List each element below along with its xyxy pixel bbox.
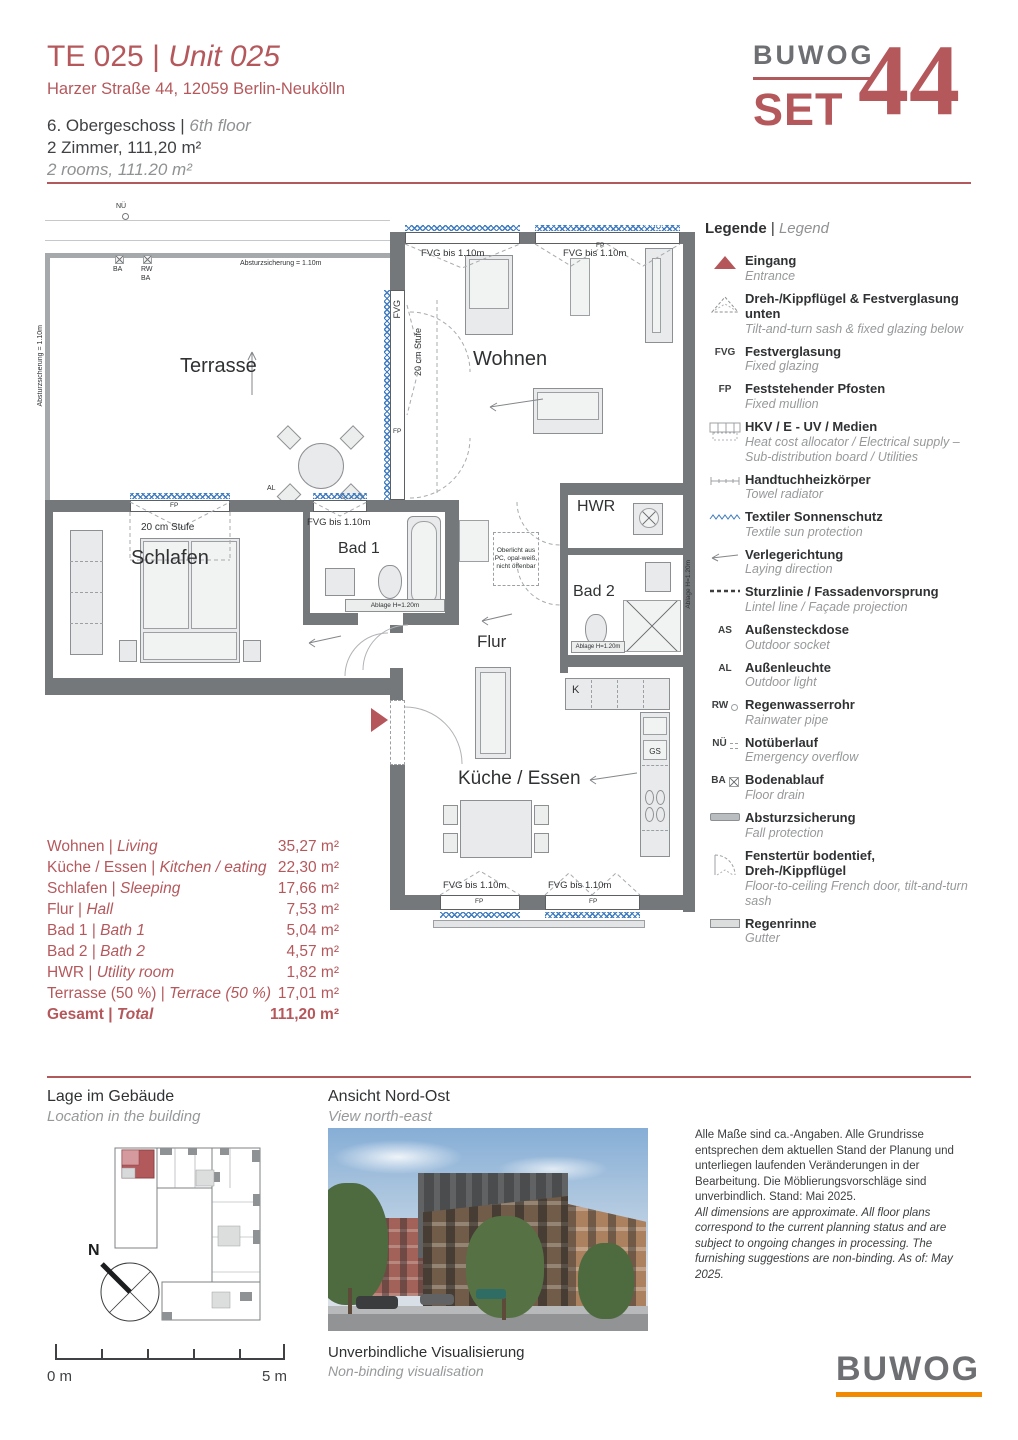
unit-title-de: TE 025	[47, 40, 144, 73]
tree-trunk	[348, 1288, 352, 1314]
legend-label-de: Dreh-/Kippflügel & Festverglasung unten	[745, 291, 975, 322]
window-label: FVG bis 1.10m	[443, 880, 506, 891]
area-name-de: Terrasse (50 %)	[47, 985, 156, 1002]
room-label-kueche: Küche / Essen	[458, 768, 581, 790]
legend-item: Dreh-/Kippflügel & Festverglasung untenT…	[705, 291, 975, 337]
gutter-icon	[705, 916, 745, 947]
area-row: Terrasse (50 %) | Terrace (50 %)17,01 m²	[47, 983, 339, 1004]
floor-plan: Ablage H=1.20m Ablage H=1.20m Oberlicht …	[45, 200, 695, 930]
legend-label-en: Entrance	[745, 269, 796, 284]
legend-label-de: Verlegerichtung	[745, 547, 843, 563]
kitchen-k-label: K	[572, 684, 579, 696]
fvg-label: FVG	[392, 300, 402, 319]
legend-label-en: Lintel line / Façade projection	[745, 600, 939, 615]
visualisation-caption-en: Non-binding visualisation	[328, 1363, 484, 1379]
legend-item: RegenrinneGutter	[705, 916, 975, 947]
window-label: FVG bis 1.10m	[563, 248, 626, 259]
legend-label-en: Towel radiator	[745, 487, 871, 502]
legend-label-en: Laying direction	[745, 562, 843, 577]
area-name-en: Bath 2	[100, 943, 145, 960]
legend-item: HKV / E - UV / MedienHeat cost allocator…	[705, 419, 975, 465]
area-separator: |	[92, 943, 96, 960]
legend-item: NÜ NotüberlaufEmergency overflow	[705, 735, 975, 766]
sun-protection-icon	[705, 509, 745, 540]
legend-label-en: Fall protection	[745, 826, 856, 841]
rainwater-icon	[655, 223, 662, 230]
disclaimer-en: All dimensions are approximate. All floo…	[695, 1206, 967, 1284]
area-separator: |	[161, 985, 165, 1002]
area-value: 17,01 m²	[278, 983, 339, 1004]
entrance-arrow-icon	[371, 708, 388, 732]
floor-de: 6. Obergeschoss	[47, 116, 176, 135]
room-label-bad1: Bad 1	[338, 540, 380, 558]
rainwater-label: RW	[141, 266, 153, 273]
title-separator: |	[152, 40, 160, 73]
fp-code: FP	[719, 384, 732, 395]
legend-label-de: HKV / E - UV / Medien	[745, 419, 960, 435]
legend-item: RW RegenwasserrohrRainwater pipe	[705, 697, 975, 728]
tilt-turn-sash-icon	[705, 291, 745, 337]
overflow-icon	[122, 213, 129, 220]
area-name-de: HWR	[47, 964, 84, 981]
view-subtitle: View north-east	[328, 1108, 432, 1125]
project-logo: BUWOG SET 44	[753, 40, 978, 170]
legend-label-en: Emergency overflow	[745, 750, 858, 765]
area-row: Bad 2 | Bath 24,57 m²	[47, 941, 339, 962]
fp-label: FP	[475, 898, 483, 905]
tree-trunk	[502, 1298, 506, 1320]
view-title: Ansicht Nord-Ost	[328, 1088, 450, 1106]
scale-bar	[55, 1346, 285, 1366]
total-separator: |	[108, 1006, 112, 1023]
total-value: 111,20 m²	[270, 1004, 339, 1025]
legend: Legende | Legend EingangEntrance Dreh-/K…	[705, 220, 975, 953]
legend-title-en: Legend	[779, 220, 829, 237]
window-label: FVG bis 1.10m	[548, 880, 611, 891]
area-value: 4,57 m²	[286, 941, 339, 962]
legend-label-de: Außensteckdose	[745, 622, 849, 638]
legend-item: Sturzlinie / FassadenvorsprungLintel lin…	[705, 584, 975, 615]
brand-logo-underline	[836, 1392, 982, 1397]
legend-label-en: Gutter	[745, 931, 817, 946]
area-name-en: Terrace (50 %)	[169, 985, 271, 1002]
as-code: AS	[718, 625, 732, 636]
tree	[578, 1243, 634, 1319]
legend-label-de: Absturzsicherung	[745, 810, 856, 826]
area-value: 1,82 m²	[286, 962, 339, 983]
legend-item: VerlegerichtungLaying direction	[705, 547, 975, 578]
ba-square-icon	[729, 777, 739, 787]
legend-label-de: Handtuchheizkörper	[745, 472, 871, 488]
step-label: 20 cm Stufe	[141, 522, 194, 533]
legend-item: FVG FestverglasungFixed glazing	[705, 344, 975, 375]
scale-start-label: 0 m	[47, 1368, 72, 1385]
legend-item: HandtuchheizkörperTowel radiator	[705, 472, 975, 503]
legend-label-de: Regenwasserrohr	[745, 697, 855, 713]
building-visualisation-image	[328, 1128, 648, 1331]
window-label: FVG bis 1.10m	[307, 517, 370, 528]
legend-label-de: Sturzlinie / Fassadenvorsprung	[745, 584, 939, 600]
legend-label-en: Fixed glazing	[745, 359, 841, 374]
fall-protection-label: Absturzsicherung = 1.10m	[240, 260, 322, 267]
legend-label-en: Fixed mullion	[745, 397, 885, 412]
legend-label-en: Rainwater pipe	[745, 713, 855, 728]
legend-item: EingangEntrance	[705, 253, 975, 284]
towel-radiator-icon	[705, 472, 745, 503]
legend-item: FP Feststehender PfostenFixed mullion	[705, 381, 975, 412]
legend-label-en: Heat cost allocator / Electrical supply …	[745, 435, 960, 465]
legend-label-en: Tilt-and-turn sash & fixed glazing below	[745, 322, 975, 337]
legend-title-separator: |	[771, 220, 775, 237]
hkv-icon	[705, 419, 745, 465]
legend-label-de: Notüberlauf	[745, 735, 858, 751]
legend-item: Textiler SonnenschutzTextile sun protect…	[705, 509, 975, 540]
legend-label-de: Regenrinne	[745, 916, 817, 932]
compass-icon	[86, 1246, 170, 1330]
page-title: TE 025 | Unit 025	[47, 40, 280, 74]
window-label: FVG bis 1.10m	[421, 248, 484, 259]
legend-label-de: Außenleuchte	[745, 660, 831, 676]
rw-code: RW	[712, 700, 728, 711]
address: Harzer Straße 44, 12059 Berlin-Neukölln	[47, 80, 345, 99]
logo-project-text: SET	[753, 84, 844, 136]
drain-label: BA	[113, 266, 122, 273]
floor-line: 6. Obergeschoss | 6th floor	[47, 116, 251, 136]
rooms-en: 2 rooms, 111.20 m²	[47, 160, 192, 180]
room-label-flur: Flur	[477, 632, 506, 652]
fp-label: FP	[170, 502, 178, 509]
fp-label: FP	[393, 428, 401, 435]
room-label-terrasse: Terrasse	[180, 355, 257, 378]
area-total-row: Gesamt | Total111,20 m²	[47, 1004, 339, 1025]
fp-label: FP	[596, 242, 604, 249]
fall-protection-icon	[705, 810, 745, 841]
ba-code: BA	[711, 775, 725, 786]
car	[476, 1289, 506, 1299]
legend-label-de: Textiler Sonnenschutz	[745, 509, 883, 525]
legend-label-de: Fenstertür bodentief, Dreh-/Kippflügel	[745, 848, 975, 879]
legend-label-en: Floor drain	[745, 788, 824, 803]
location-title: Lage im Gebäude	[47, 1088, 174, 1106]
rw-circle-icon	[731, 704, 738, 711]
step-label: 20 cm Stufe	[413, 328, 423, 376]
footer-divider	[47, 1076, 971, 1078]
brand-logo: BUWOG	[836, 1350, 982, 1397]
area-separator: |	[88, 964, 92, 981]
legend-item: AbsturzsicherungFall protection	[705, 810, 975, 841]
room-label-wohnen: Wohnen	[473, 348, 547, 371]
area-name-de: Bad 2	[47, 943, 88, 960]
logo-brand-text: BUWOG	[753, 40, 874, 71]
floor-separator: |	[180, 116, 184, 135]
visualisation-caption-de: Unverbindliche Visualisierung	[328, 1344, 525, 1361]
legend-label-en: Outdoor light	[745, 675, 831, 690]
total-name-de: Gesamt	[47, 1006, 104, 1023]
entrance-icon	[705, 253, 745, 284]
tree	[328, 1183, 388, 1305]
legend-item: AL AußenleuchteOutdoor light	[705, 660, 975, 691]
lintel-line-icon	[705, 584, 745, 615]
area-row: HWR | Utility room1,82 m²	[47, 962, 339, 983]
laying-direction-icon	[705, 547, 745, 578]
shelf-label: Ablage H=1.20m	[685, 560, 692, 609]
legend-label-de: Bodenablauf	[745, 772, 824, 788]
legend-label-en: Floor-to-ceiling French door, tilt-and-t…	[745, 879, 975, 909]
unit-title-en: Unit 025	[168, 40, 280, 73]
floor-en: 6th floor	[189, 116, 250, 135]
total-name-en: Total	[117, 1006, 153, 1023]
legend-label-de: Eingang	[745, 253, 796, 269]
area-name-en: Utility room	[97, 964, 175, 981]
logo-underline	[753, 77, 873, 80]
nue-code: NÜ	[712, 738, 726, 749]
scale-end-label: 5 m	[262, 1368, 287, 1385]
car	[356, 1296, 398, 1309]
disclaimer: Alle Maße sind ca.-Angaben. Alle Grundri…	[695, 1128, 967, 1283]
disclaimer-de: Alle Maße sind ca.-Angaben. Alle Grundri…	[695, 1128, 967, 1206]
room-label-hwr: HWR	[577, 498, 615, 516]
legend-title-de: Legende	[705, 220, 767, 237]
french-door-icon	[705, 848, 745, 909]
location-subtitle: Location in the building	[47, 1108, 200, 1125]
legend-item: Fenstertür bodentief, Dreh-/KippflügelFl…	[705, 848, 975, 909]
nue-symbol-icon	[730, 743, 738, 749]
overflow-label: NÜ	[116, 203, 126, 210]
fvg-code: FVG	[715, 347, 736, 358]
al-code: AL	[718, 663, 731, 674]
legend-item: BA BodenablaufFloor drain	[705, 772, 975, 803]
cloud	[333, 1140, 463, 1174]
fp-label: FP	[589, 898, 597, 905]
legend-label-en: Textile sun protection	[745, 525, 883, 540]
outdoor-light-label: AL	[267, 485, 276, 492]
legend-item: AS AußensteckdoseOutdoor socket	[705, 622, 975, 653]
legend-label-en: Outdoor socket	[745, 638, 849, 653]
rainwater-label: RW	[641, 221, 653, 228]
legend-label-de: Feststehender Pfosten	[745, 381, 885, 397]
drain-label: BA	[141, 275, 150, 282]
legend-label-de: Festverglasung	[745, 344, 841, 360]
legend-title: Legende | Legend	[705, 220, 975, 237]
header-divider	[47, 182, 971, 184]
car	[420, 1294, 454, 1305]
room-label-schlafen: Schlafen	[131, 547, 209, 570]
brand-logo-text: BUWOG	[836, 1350, 982, 1389]
fall-protection-label: Absturzsicherung = 1.10m	[37, 325, 44, 407]
rooms-de: 2 Zimmer, 111,20 m²	[47, 138, 201, 158]
room-label-bad2: Bad 2	[573, 583, 615, 601]
logo-number-text: 44	[858, 22, 960, 139]
